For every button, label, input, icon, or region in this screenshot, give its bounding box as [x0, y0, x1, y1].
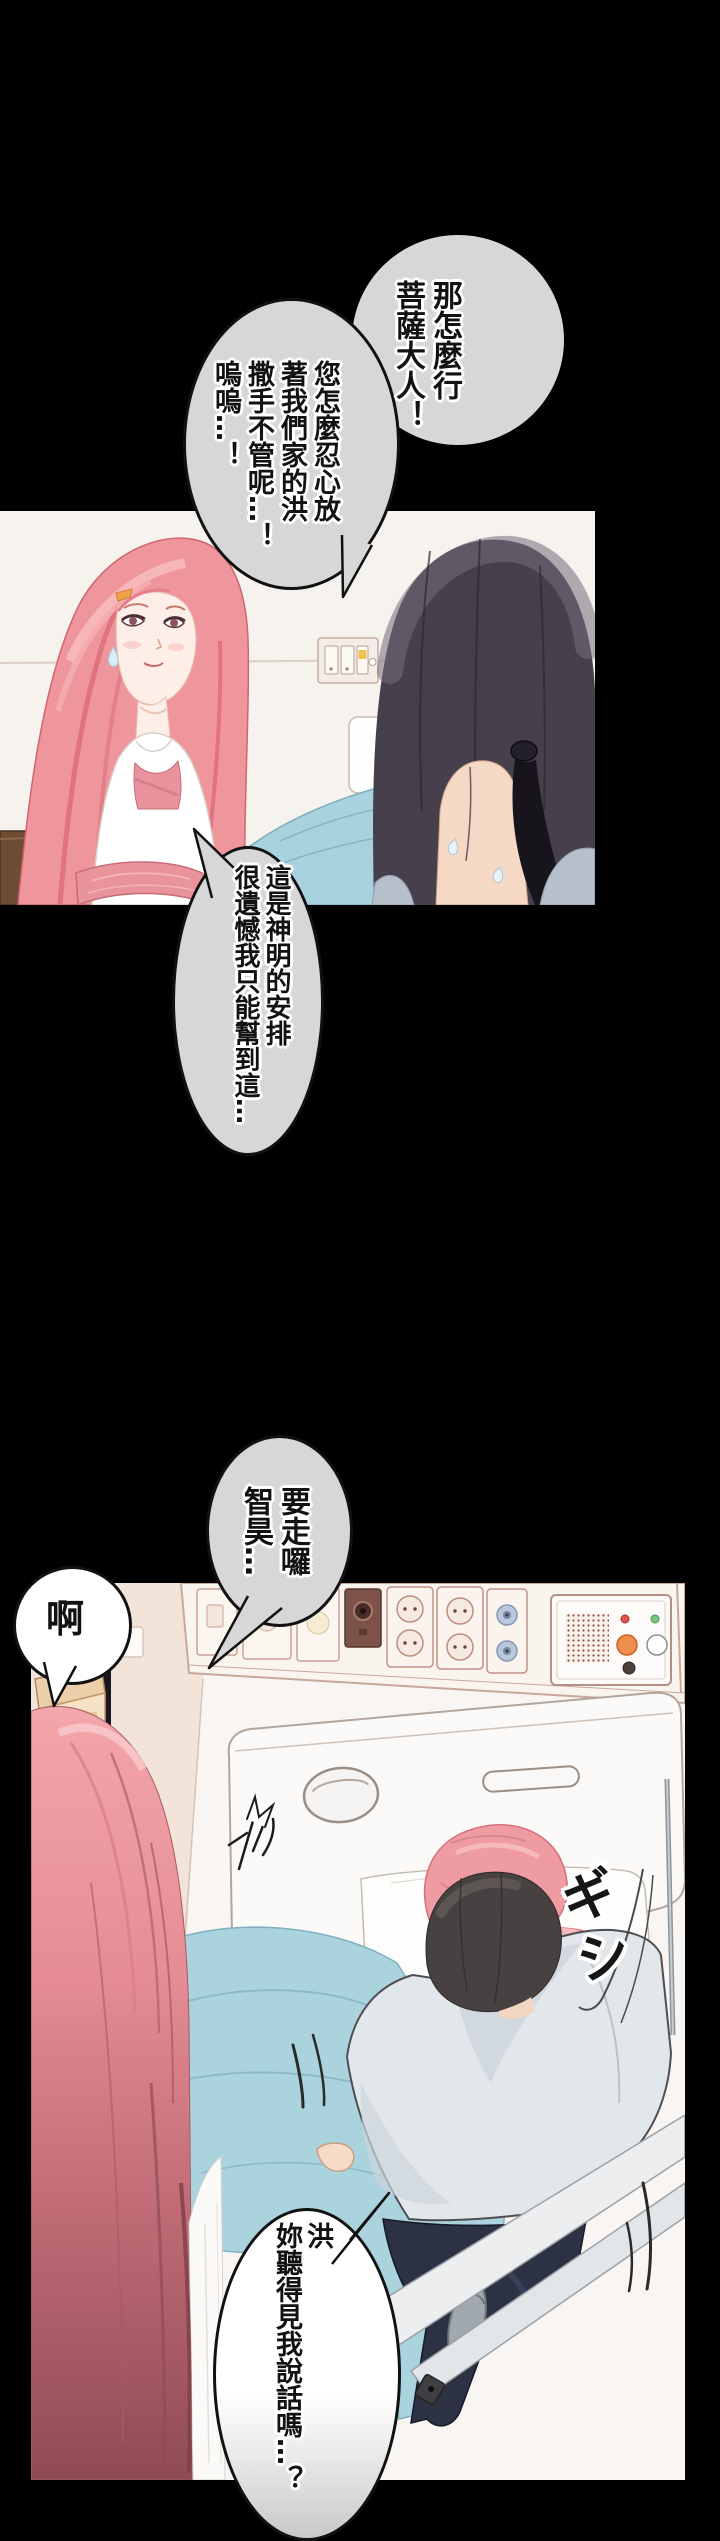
- speaker-grille: [565, 1613, 609, 1663]
- text-column: 這是神明的安排: [260, 864, 291, 1124]
- bubble-text-leaving: 要走囉 智昊…: [237, 1486, 311, 1576]
- hair-tie: [511, 741, 537, 761]
- text-column: 著我們家的洪: [275, 360, 308, 549]
- text-column: 智昊…: [237, 1486, 274, 1576]
- text-column: 您怎麼忍心放: [308, 360, 341, 549]
- bubble-text-top-right: 那怎麼行 菩薩大人！: [389, 280, 463, 430]
- bubble-text-top-left: 您怎麼忍心放 著我們家的洪 撒手不管呢…！ 嗚嗚…！: [209, 360, 341, 549]
- bubble-text-bottom: 洪 妳聽得見我說話嗎…？: [271, 2222, 333, 2492]
- green-indicator: [651, 1615, 659, 1623]
- red-indicator: [621, 1615, 629, 1623]
- text-column: 很遺憾我只能幫到這…: [229, 864, 260, 1124]
- text-column: 菩薩大人！: [389, 280, 426, 430]
- text-column: 撒手不管呢…！: [242, 360, 275, 549]
- text-column: 洪: [302, 2222, 333, 2492]
- text-column: 嗚嗚…！: [209, 360, 242, 549]
- white-call-button: [647, 1635, 667, 1655]
- text-column: 妳聽得見我說話嗎…？: [271, 2222, 302, 2492]
- text-column: 要走囉: [274, 1486, 311, 1576]
- nurse-call-console: [551, 1595, 671, 1685]
- orange-call-button: [617, 1635, 637, 1655]
- bubble-text-ah: 啊: [46, 1588, 84, 1643]
- comic-page: 那怎麼行 菩薩大人！ 您怎麼忍心放 著我們家的洪 撒手不管呢…！ 嗚嗚…！ 這是…: [0, 0, 720, 2541]
- wall-outlet-console: [318, 638, 378, 683]
- woman-ponytail-back-view: [372, 539, 595, 905]
- small-button: [623, 1662, 635, 1674]
- text-column: 那怎麼行: [426, 280, 463, 430]
- bubble-text-middle: 這是神明的安排 很遺憾我只能幫到這…: [229, 864, 291, 1124]
